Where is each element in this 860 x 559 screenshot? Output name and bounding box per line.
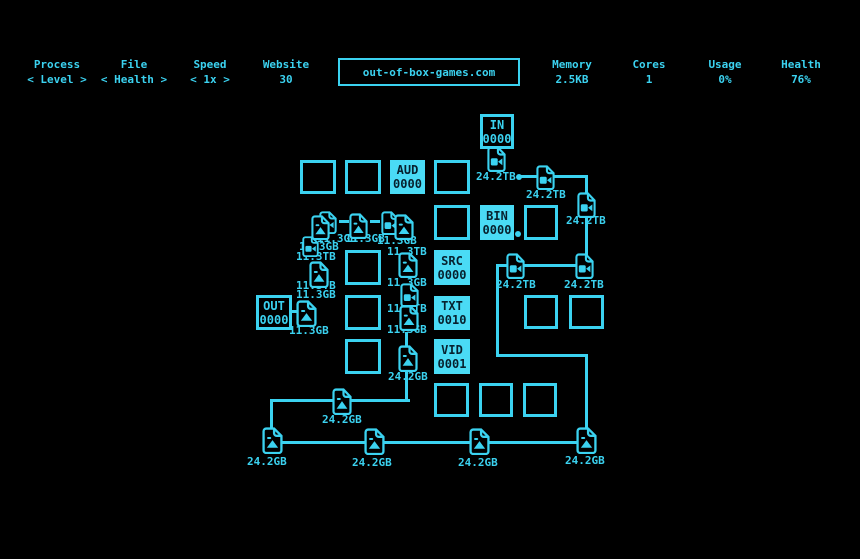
file-size-label: 24.2TB: [496, 279, 536, 291]
video-file-icon[interactable]: [536, 165, 555, 190]
node-label: SRC: [441, 254, 463, 268]
node-label: TXT: [441, 299, 463, 313]
connection-line: [585, 354, 588, 432]
node-label: AUD: [397, 163, 419, 177]
grid-cell[interactable]: [569, 295, 604, 329]
video-file-icon[interactable]: [487, 146, 506, 172]
video-file-icon[interactable]: [577, 192, 596, 218]
file-size-label: 24.2GB: [388, 371, 428, 383]
connection-line: [339, 220, 349, 223]
grid-cell[interactable]: [300, 160, 336, 194]
grid-cell[interactable]: [524, 205, 558, 240]
video-file-icon[interactable]: [575, 253, 594, 279]
photo-file-icon[interactable]: [399, 305, 419, 331]
grid-cell[interactable]: [345, 339, 381, 374]
node-label: OUT: [263, 299, 285, 313]
grid-cell[interactable]: [524, 295, 558, 329]
video-file-icon[interactable]: [400, 283, 419, 307]
file-size-label: 24.2GB: [247, 456, 287, 468]
grid-cell[interactable]: [479, 383, 513, 417]
photo-file-icon[interactable]: [296, 300, 317, 327]
node-bin[interactable]: BIN0000: [480, 205, 514, 240]
stat-value: 76%: [746, 73, 856, 86]
packet-dot: [515, 231, 521, 237]
stat-health: Health76%: [746, 58, 856, 86]
node-code: 0000: [483, 132, 512, 146]
node-code: 0010: [438, 313, 467, 327]
grid-cell[interactable]: [434, 160, 470, 194]
grid-cell[interactable]: [345, 250, 381, 285]
photo-file-icon[interactable]: [262, 427, 283, 454]
node-src[interactable]: SRC0000: [434, 250, 470, 285]
photo-file-icon[interactable]: [332, 388, 352, 415]
node-label: BIN: [486, 209, 508, 223]
grid-cell[interactable]: [345, 160, 381, 194]
node-code: 0000: [393, 177, 422, 191]
connection-line: [523, 264, 577, 267]
stat-label: Website: [231, 58, 341, 71]
photo-file-icon[interactable]: [394, 214, 414, 240]
file-size-label: 24.2TB: [526, 189, 566, 201]
grid-cell[interactable]: [434, 383, 469, 417]
file-size-label: 24.2GB: [458, 457, 498, 469]
node-aud[interactable]: AUD0000: [390, 160, 425, 194]
photo-file-icon[interactable]: [398, 345, 418, 372]
node-code: 0000: [260, 313, 289, 327]
node-in[interactable]: IN0000: [480, 114, 514, 149]
photo-file-icon[interactable]: [364, 428, 385, 455]
grid-cell[interactable]: [434, 205, 470, 240]
grid-cell[interactable]: [523, 383, 557, 417]
website-address: out-of-box-games.com: [363, 66, 495, 79]
node-code: 0001: [438, 357, 467, 371]
packet-dot: [516, 174, 522, 180]
game-screen: 24.2TB24.2TB24.2TB24.2TB24.2TB11.3GB11.3…: [0, 0, 860, 559]
node-vid[interactable]: VID0001: [434, 339, 470, 374]
stat-website: Website30: [231, 58, 341, 86]
photo-file-icon[interactable]: [469, 428, 490, 455]
node-code: 0000: [438, 268, 467, 282]
node-label: VID: [441, 343, 463, 357]
file-size-label: 24.2TB: [476, 171, 516, 183]
photo-file-icon[interactable]: [349, 213, 368, 239]
file-size-label: 24.2TB: [564, 279, 604, 291]
file-size-label: 24.2GB: [322, 414, 362, 426]
grid-cell[interactable]: [345, 295, 381, 330]
top-bar: out-of-box-games.com Process< Level >Fil…: [0, 0, 860, 95]
connection-line: [272, 441, 586, 444]
website-address-box: out-of-box-games.com: [338, 58, 520, 86]
node-code: 0000: [483, 223, 512, 237]
connection-line: [370, 220, 380, 223]
stat-label: Health: [746, 58, 856, 71]
node-label: IN: [490, 118, 504, 132]
photo-file-icon[interactable]: [576, 427, 597, 454]
node-txt[interactable]: TXT0010: [434, 296, 470, 330]
video-file-icon[interactable]: [506, 253, 525, 279]
node-out[interactable]: OUT0000: [256, 295, 292, 330]
stat-value: 30: [231, 73, 341, 86]
file-size-label: 24.2GB: [565, 455, 605, 467]
photo-file-icon[interactable]: [311, 215, 330, 240]
file-size-label: 24.2GB: [352, 457, 392, 469]
photo-file-icon[interactable]: [398, 252, 418, 278]
connection-line: [496, 354, 588, 357]
photo-file-icon[interactable]: [309, 261, 329, 288]
